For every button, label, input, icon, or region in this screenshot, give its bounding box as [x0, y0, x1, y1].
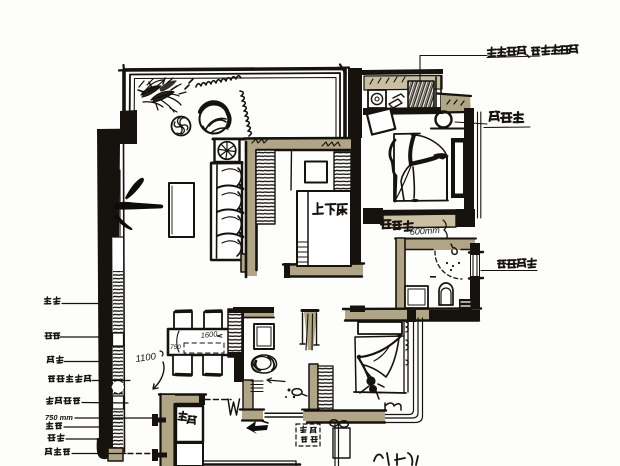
svg-text:1600: 1600: [200, 329, 218, 340]
svg-text:750: 750: [170, 344, 181, 351]
svg-text:600mm: 600mm: [409, 225, 440, 237]
svg-text:750 mm: 750 mm: [45, 413, 73, 422]
